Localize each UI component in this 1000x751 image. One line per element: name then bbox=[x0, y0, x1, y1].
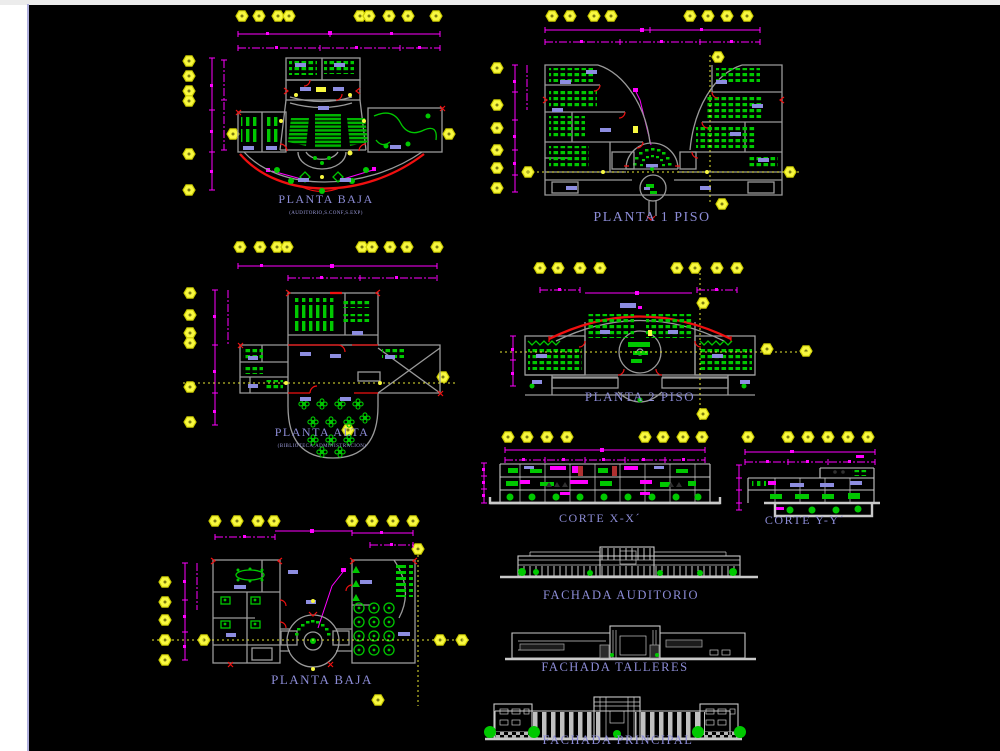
label-planta-2-piso: PLANTA 2 PISO bbox=[585, 389, 695, 405]
dimensions-layer bbox=[212, 263, 437, 425]
furniture-green bbox=[549, 68, 778, 194]
label-fachada-auditorio: FACHADA AUDITORIO bbox=[543, 588, 699, 603]
label-corte-xx: CORTE X-X´ bbox=[559, 511, 641, 526]
grid-bubbles bbox=[502, 432, 708, 442]
grid-bubbles bbox=[742, 432, 874, 442]
label-corte-yy: CORTE Y-Y´ bbox=[765, 513, 845, 528]
label-fachada-talleres: FACHADA TALLERES bbox=[541, 660, 688, 675]
label-planta-baja-2: PLANTA BAJA bbox=[271, 672, 373, 688]
drawing-planta-1-piso bbox=[488, 8, 813, 230]
drawing-fachada-talleres bbox=[500, 618, 762, 666]
label-planta-1-piso: PLANTA 1 PISO bbox=[593, 210, 710, 226]
furniture-green bbox=[221, 565, 413, 655]
section-contents bbox=[752, 470, 868, 514]
browser-top-strip bbox=[0, 0, 1000, 5]
fixtures-violet bbox=[248, 331, 395, 401]
dimensions-layer bbox=[481, 447, 705, 503]
drawing-fachada-auditorio bbox=[498, 545, 760, 585]
sublabel-planta-baja-auditorio: (AUDITORIO,S.CONF,S.EXP) bbox=[289, 211, 363, 216]
elevation-lines bbox=[505, 626, 756, 659]
dimensions-layer bbox=[736, 449, 875, 510]
grid-bubbles bbox=[184, 242, 449, 435]
label-fachada-principal: FACHADA PRINCIPAL bbox=[543, 733, 694, 748]
page-left-margin bbox=[0, 5, 27, 751]
drawing-planta-baja-auditorio bbox=[180, 8, 472, 208]
sublabel-planta-alta: (BIBLIOTECA,ADMINISTRACION) bbox=[278, 444, 367, 449]
yellow-marks bbox=[183, 381, 458, 385]
section-contents bbox=[506, 466, 702, 501]
stairs-hatch bbox=[552, 378, 728, 388]
label-planta-alta: PLANTA ALTA bbox=[275, 425, 369, 440]
cad-drawing-canvas[interactable]: PLANTA BAJA (AUDITORIO,S.CONF,S.EXP) PLA… bbox=[0, 0, 1000, 751]
page-border-line bbox=[27, 4, 29, 751]
label-planta-baja-auditorio: PLANTA BAJA bbox=[278, 192, 373, 207]
